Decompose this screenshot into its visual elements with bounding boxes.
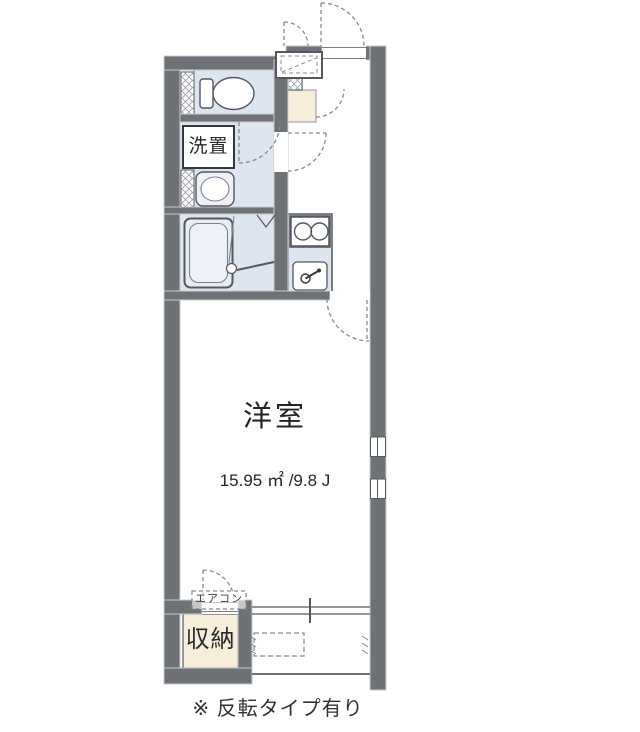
wall-room-top <box>164 291 330 300</box>
entrance-step-arc <box>316 89 344 117</box>
meter-box <box>276 52 322 78</box>
stove-icon <box>291 217 330 247</box>
washroom-opening <box>274 132 288 172</box>
pipe-space-middle <box>181 170 194 207</box>
floorplan-page: 洗置 洋室 15.95 ㎡ /9.8 J エアコン 収納 ※ 反転タイプ有り <box>0 0 640 732</box>
footnote-label: ※ 反転タイプ有り <box>128 699 428 719</box>
sink-icon <box>293 262 327 290</box>
entrance-door-arc <box>321 3 364 46</box>
washroom-door-arc <box>288 133 326 171</box>
storage-label: 収納 <box>183 628 238 652</box>
wall-bottom-left <box>164 668 252 684</box>
pipe-space-top <box>181 72 194 114</box>
room-door-arc <box>327 299 369 341</box>
wall-toilet-washroom <box>180 114 274 122</box>
entrance-tile <box>286 90 316 122</box>
wall-washroom-bathroom <box>164 207 274 214</box>
wall-sanitary-hall <box>274 60 288 292</box>
aircon-label: エアコン <box>192 594 246 605</box>
washbasin-icon <box>196 172 234 206</box>
wall-right <box>370 46 386 690</box>
floorplan-drawing <box>0 0 640 732</box>
meter-box-door-arc <box>284 22 308 46</box>
balcony-equipment-outline <box>254 633 304 656</box>
balcony <box>250 598 370 674</box>
room-door-opening <box>330 291 370 300</box>
laundry-space-label: 洗置 <box>183 137 234 156</box>
toilet-icon <box>200 78 254 110</box>
room-name-label: 洋室 <box>180 403 370 432</box>
wall-left <box>164 56 180 684</box>
window-right-upper <box>371 437 386 457</box>
balcony-sliding-window <box>252 598 370 623</box>
wall-top-left <box>164 56 288 70</box>
balcony-break-marks-right <box>362 636 368 654</box>
room-area-label: 15.95 ㎡ /9.8 J <box>160 472 390 489</box>
